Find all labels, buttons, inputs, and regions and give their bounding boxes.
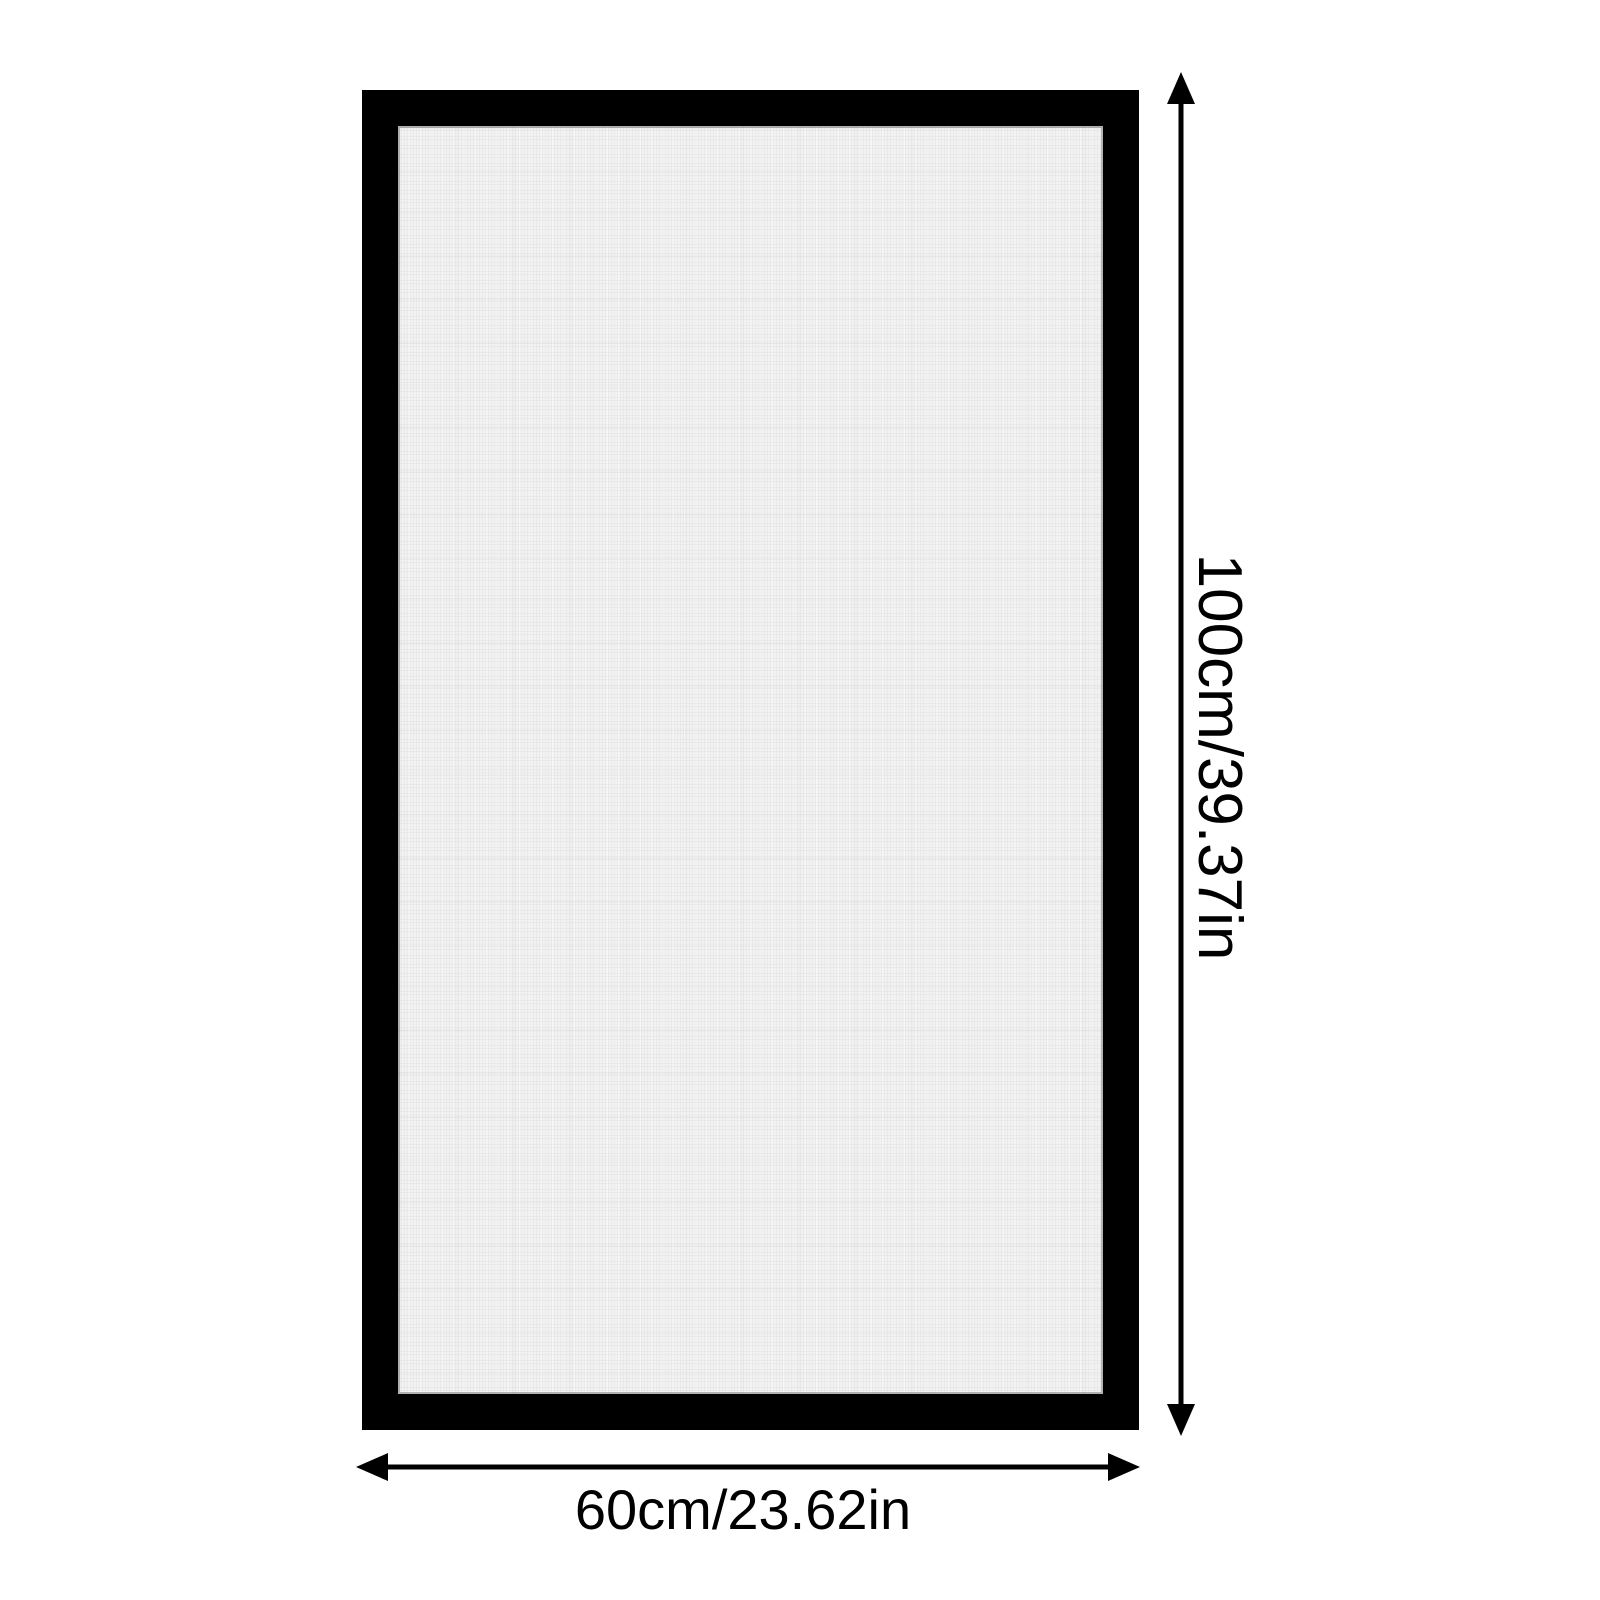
width-dimension-arrow xyxy=(356,1453,1140,1481)
product-image: 100cm/39.37in 60cm/23.62in xyxy=(0,0,1600,1600)
screen-frame xyxy=(362,90,1139,1430)
width-dimension-label: 60cm/23.62in xyxy=(575,1482,911,1538)
mesh-screen xyxy=(398,126,1103,1394)
height-dimension-label: 100cm/39.37in xyxy=(1188,554,1250,961)
